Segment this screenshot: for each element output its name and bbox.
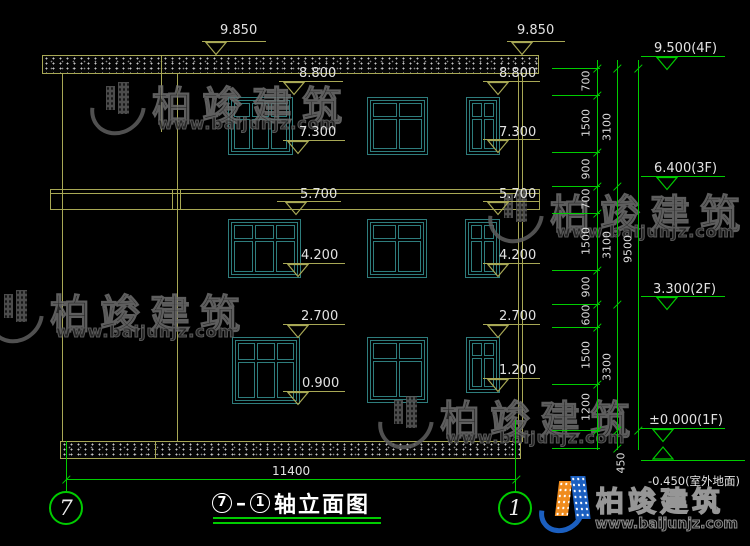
chain-dim-middle: 3300 — [601, 353, 614, 381]
chain-dim-middle: 3100 — [601, 113, 614, 141]
floor-level-label: ±0.000(1F) — [649, 413, 723, 428]
elevation-drawing: 7 – 1 轴立面图 7 1 11400 柏竣建筑 www.baijunjz.c… — [0, 0, 750, 546]
elevation-label: 0.900 — [302, 376, 339, 391]
watermark-logo-icon — [376, 392, 432, 444]
level-triangle-icon — [656, 297, 678, 311]
chain-tick — [552, 304, 600, 305]
chain-line-0 — [597, 60, 598, 450]
window-pane — [398, 241, 421, 272]
elevation-label: 7.300 — [499, 125, 536, 140]
chain-tick — [552, 186, 600, 187]
axis-bubble-1: 1 — [498, 491, 532, 525]
elevation-label: 2.700 — [301, 309, 338, 324]
window-pane — [238, 343, 255, 360]
elevation-label: 8.800 — [499, 66, 536, 81]
ground-band-joint — [155, 441, 156, 459]
elevation-label: 5.700 — [300, 187, 337, 202]
elevation-label: 2.700 — [499, 309, 536, 324]
wall-line-0 — [62, 74, 63, 442]
floor-level-label: 6.400(3F) — [654, 161, 717, 176]
title-underline-2 — [213, 522, 381, 524]
window-pane — [373, 343, 397, 359]
chain-dim-inner: 1500 — [580, 227, 593, 255]
window-pane — [398, 225, 421, 239]
window-pane — [484, 343, 494, 356]
window-pane — [472, 119, 482, 149]
window-pane — [255, 241, 274, 272]
brand-footer-name: 柏竣建筑 — [596, 480, 724, 520]
window-pane — [257, 362, 274, 399]
floor-level-label: 3.300(2F) — [653, 282, 716, 297]
title-text: 轴立面图 — [274, 487, 370, 519]
window-pane — [277, 343, 294, 360]
watermark: 柏竣建筑www.baijunjz.com — [0, 282, 326, 344]
chain-dim-inner: 900 — [580, 159, 593, 180]
window-pane — [472, 358, 482, 387]
level-triangle-icon — [652, 429, 674, 443]
level-triangle-icon — [656, 177, 678, 191]
level-triangle-icon — [287, 392, 309, 406]
chain-tick — [552, 152, 600, 153]
overall-dim-line — [66, 479, 516, 480]
mid-band-top — [50, 189, 540, 190]
chain-tick — [552, 68, 600, 69]
roof-band-joint — [161, 55, 162, 74]
chain-dim-inner: 1200 — [580, 393, 593, 421]
window-pane — [471, 241, 482, 272]
chain-tick — [552, 95, 600, 96]
level-triangle-icon — [283, 82, 305, 96]
watermark-logo-icon — [0, 286, 42, 338]
elevation-label: 5.700 — [499, 187, 536, 202]
chain-dim-inner: 700 — [580, 71, 593, 92]
level-triangle-icon — [487, 379, 509, 393]
mid-band-cap-left — [50, 189, 51, 210]
chain-dim-ground: 450 — [615, 453, 628, 474]
elevation-label: 9.850 — [517, 23, 554, 38]
chain-tick — [552, 270, 600, 271]
roof-slab-band — [42, 55, 539, 74]
level-triangle-icon — [287, 264, 309, 278]
overall-width-dimension: 11400 — [272, 464, 310, 478]
level-triangle-icon — [487, 82, 509, 96]
window-pane — [484, 103, 494, 117]
watermark-logo-icon — [88, 78, 144, 130]
level-triangle-icon — [487, 325, 509, 339]
elevation-label: 9.850 — [220, 23, 257, 38]
mid-band-top2 — [50, 193, 540, 194]
window-pane — [234, 241, 253, 272]
chain-dim-middle: 3100 — [601, 231, 614, 259]
elevation-label: 4.200 — [301, 248, 338, 263]
floor-level-line — [641, 56, 725, 57]
chain-dim-inner: 1500 — [580, 109, 593, 137]
chain-dim-inner: 600 — [580, 305, 593, 326]
window-pane — [257, 343, 274, 360]
watermark-url: www.baijunjz.com — [56, 322, 235, 341]
chain-dim-inner: 1500 — [580, 341, 593, 369]
brand-footer-url: www.baijunjz.com — [595, 516, 738, 532]
mid-band-joint-b — [180, 189, 181, 210]
chain-tick — [552, 448, 600, 449]
elevation-label: 7.300 — [299, 125, 336, 140]
chain-line-1 — [617, 60, 618, 450]
title-dash: – — [236, 491, 246, 515]
window-pane — [238, 362, 255, 399]
level-triangle-icon — [287, 325, 309, 339]
window-pane — [255, 225, 274, 239]
chain-tick — [552, 213, 600, 214]
chain-tick — [552, 327, 600, 328]
chain-dim-inner: 700 — [580, 189, 593, 210]
window-pane — [399, 343, 423, 359]
axis-bubble-7: 7 — [49, 491, 83, 525]
floor-level-label: 9.500(4F) — [654, 41, 717, 56]
elevation-label: 4.200 — [499, 248, 536, 263]
floor-level-line — [641, 296, 725, 297]
chain-dim-inner: 900 — [580, 277, 593, 298]
title-axis-circle-left: 7 — [212, 493, 232, 513]
chain-line-2 — [638, 60, 639, 450]
level-triangle-icon — [205, 42, 227, 56]
level-triangle-icon — [287, 141, 309, 155]
level-triangle-icon — [487, 140, 509, 154]
window-pane — [471, 225, 482, 239]
level-triangle-icon — [652, 446, 674, 460]
level-triangle-icon — [656, 57, 678, 71]
level-triangle-icon — [511, 42, 533, 56]
window-pane — [472, 343, 482, 356]
chain-dim-total: 9500 — [622, 235, 635, 263]
brand-logo-icon — [538, 474, 596, 540]
elevation-label: 1.200 — [499, 363, 536, 378]
drawing-title: 7 – 1 轴立面图 — [212, 487, 370, 519]
window-pane — [234, 225, 253, 239]
window-pane — [373, 225, 396, 239]
floor-level-line — [641, 176, 725, 177]
level-triangle-icon — [487, 264, 509, 278]
level-triangle-icon — [285, 202, 307, 216]
chain-tick — [552, 384, 600, 385]
window-pane — [276, 225, 295, 239]
level-triangle-icon — [487, 202, 509, 216]
title-axis-circle-right: 1 — [250, 493, 270, 513]
window-pane — [373, 241, 396, 272]
axis-line-left — [66, 441, 67, 491]
watermark: 柏竣建筑www.baijunjz.com — [88, 74, 428, 136]
title-underline-1 — [213, 517, 381, 519]
mid-band-joint-a — [172, 189, 173, 210]
window-pane — [472, 103, 482, 117]
window — [367, 219, 427, 278]
elevation-label: 8.800 — [299, 66, 336, 81]
window-frame — [370, 222, 424, 275]
chain-tick — [552, 430, 600, 431]
floor-level-line — [641, 460, 745, 461]
